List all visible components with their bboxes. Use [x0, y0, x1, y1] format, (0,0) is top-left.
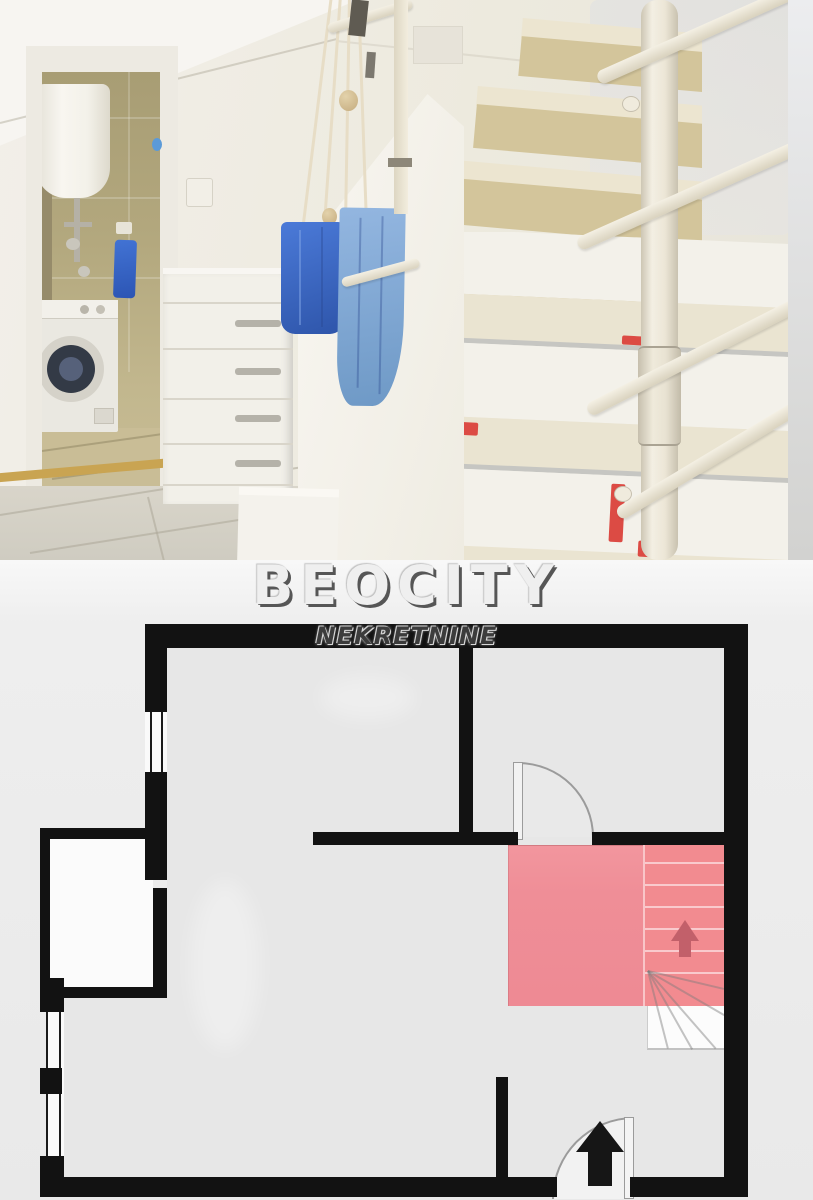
- blue-bag: [281, 222, 344, 334]
- balcony-wall: [40, 828, 50, 998]
- white-step-box: [237, 487, 339, 560]
- wall-interior: [313, 832, 518, 845]
- hammock-rope: [301, 0, 333, 233]
- metal-bracket: [348, 0, 369, 37]
- interior-photo: [0, 0, 813, 560]
- washer-control-panel: [42, 300, 118, 319]
- faucet: [78, 266, 90, 277]
- garment-fold: [378, 216, 383, 394]
- tile-grout: [42, 433, 160, 452]
- window-line: [150, 712, 152, 772]
- dresser: [163, 268, 293, 504]
- drawer-seam: [163, 484, 293, 486]
- balcony-area: [50, 839, 153, 987]
- wall-bottom: [40, 1177, 557, 1197]
- wall-outlet: [116, 222, 132, 234]
- tread-line: [645, 884, 724, 886]
- wall-left: [145, 772, 167, 880]
- balcony-glass-wall: [153, 888, 167, 988]
- wall-bottom: [630, 1177, 748, 1197]
- wooden-bead: [339, 90, 358, 111]
- highlight: [190, 880, 260, 1050]
- drawer-seam: [163, 443, 293, 445]
- drawer-handle: [235, 415, 281, 422]
- entrance-arrow-icon: [588, 1150, 612, 1186]
- photo-right-edge: [788, 0, 813, 560]
- bathroom-doorway: [42, 72, 160, 496]
- washer-door-center: [59, 357, 83, 381]
- drawer-handle: [235, 460, 281, 467]
- blue-towel: [113, 240, 137, 299]
- floor-plan: BEOCITY NEKRETNINE: [0, 560, 813, 1200]
- faucet: [66, 238, 80, 250]
- bag-fold: [299, 230, 301, 325]
- drawer-seam: [163, 302, 293, 304]
- floor-grout: [147, 497, 166, 560]
- stairs-up-arrow-icon: [679, 940, 691, 957]
- wall-interior: [592, 832, 724, 845]
- drawer-seam: [163, 398, 293, 400]
- wall-interior: [459, 648, 473, 845]
- tread-line: [645, 862, 724, 864]
- window-mullion: [40, 1068, 62, 1094]
- highlight: [320, 675, 415, 720]
- railing-post: [394, 0, 408, 214]
- water-heater: [42, 84, 110, 198]
- post-bracket: [388, 158, 412, 167]
- watermark-brand: BEOCITY: [0, 554, 813, 617]
- washer-drawer: [94, 408, 114, 424]
- tread-line: [645, 906, 724, 908]
- window-line: [161, 712, 163, 772]
- drawer-handle: [235, 320, 281, 327]
- blue-sticker: [152, 138, 162, 151]
- wall-stub: [496, 1077, 508, 1197]
- wall-segment: [40, 978, 64, 1012]
- drawer-seam: [163, 348, 293, 350]
- railing-cap: [614, 486, 632, 502]
- light-switch: [186, 178, 213, 207]
- bag-fold: [321, 227, 323, 327]
- pipe: [64, 222, 92, 227]
- washer-knob: [80, 305, 89, 314]
- window: [145, 712, 167, 772]
- room-area: [64, 998, 167, 1177]
- tile-grout: [42, 277, 160, 279]
- door-leaf: [513, 762, 523, 840]
- listing-image: BEOCITY NEKRETNINE: [0, 0, 813, 1200]
- wall-right: [724, 624, 748, 1197]
- tread-divider: [643, 845, 645, 1006]
- metal-bracket: [365, 52, 376, 79]
- washer-knob: [96, 305, 105, 314]
- staircase-landing: [508, 845, 643, 1006]
- railing-cap: [622, 96, 640, 112]
- watermark-subtitle: NEKRETNINE: [0, 622, 813, 650]
- washing-machine: [42, 300, 118, 432]
- pipe: [74, 198, 80, 262]
- garment-fold: [357, 218, 362, 388]
- drawer-handle: [235, 368, 281, 375]
